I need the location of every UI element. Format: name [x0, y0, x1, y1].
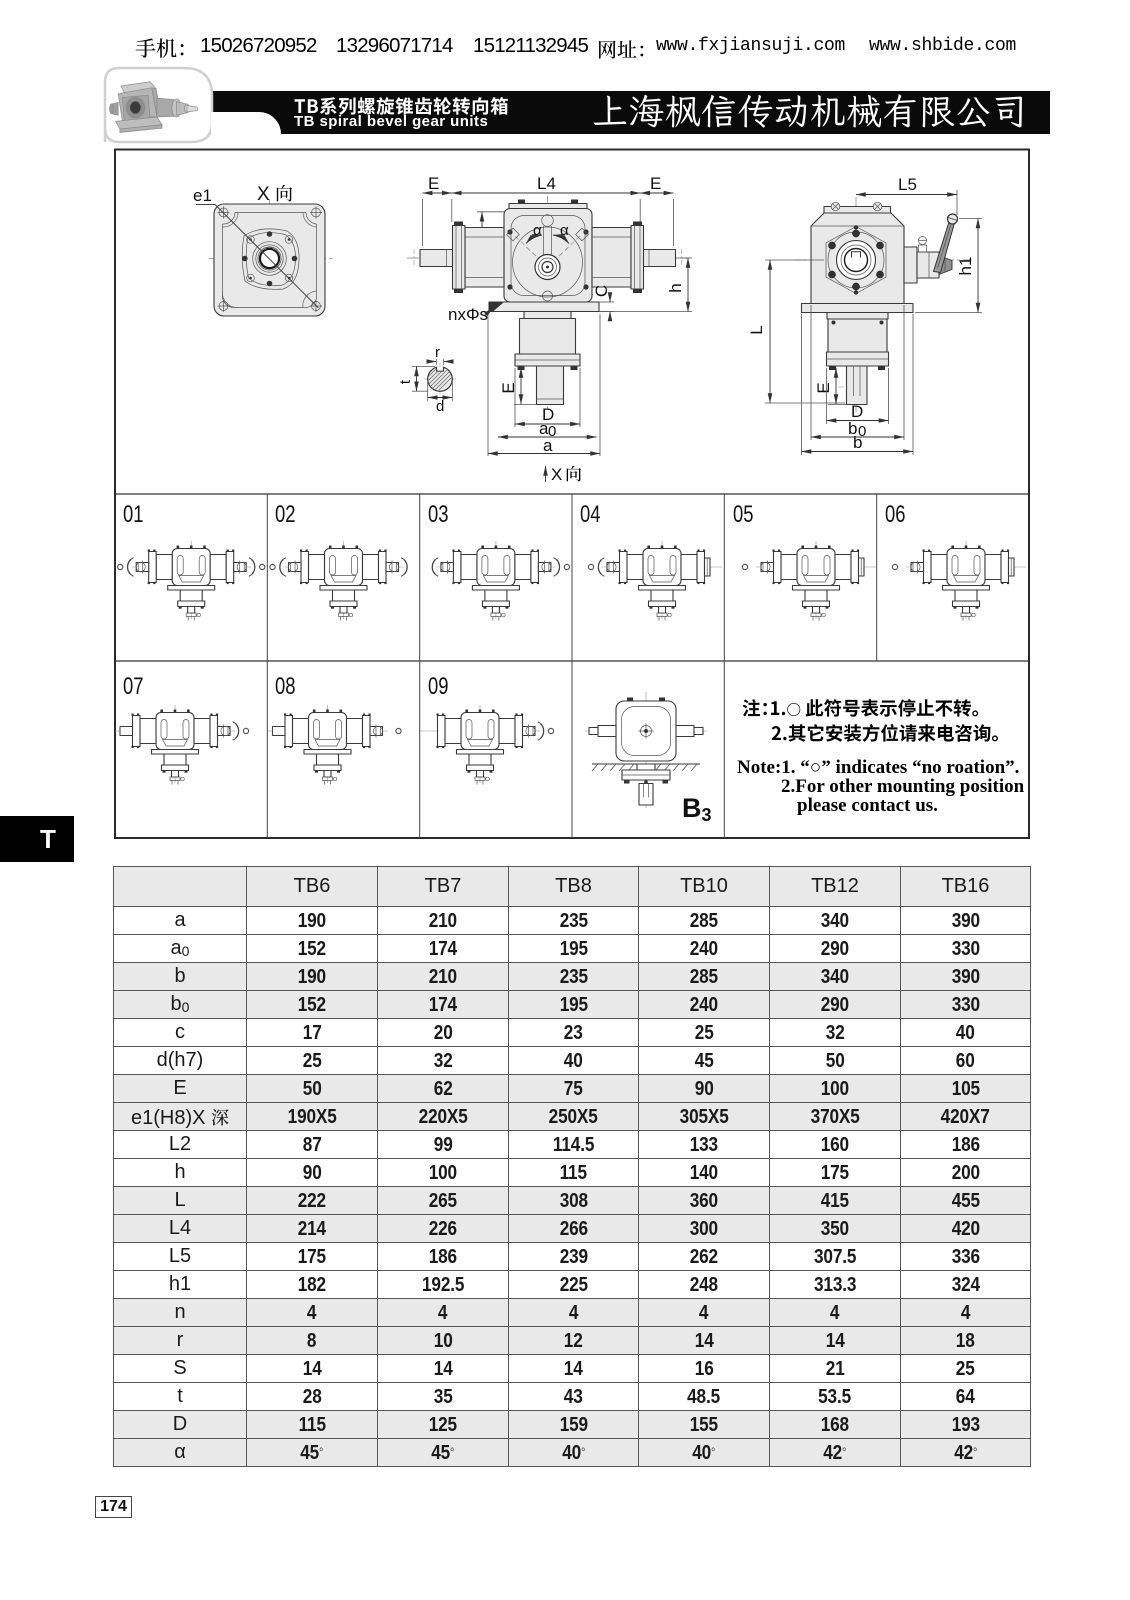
- svg-text:nxΦs: nxΦs: [448, 305, 488, 324]
- svg-text:h: h: [666, 283, 685, 292]
- svg-text:d: d: [436, 398, 444, 415]
- svg-text:e1: e1: [193, 186, 212, 205]
- svg-text:α: α: [560, 222, 569, 239]
- svg-text:b: b: [853, 433, 862, 452]
- svg-text:02: 02: [275, 501, 296, 528]
- svg-text:04: 04: [580, 501, 601, 528]
- svg-text:向: 向: [565, 460, 582, 485]
- svg-text:06: 06: [885, 501, 906, 528]
- svg-text:h1: h1: [956, 257, 975, 276]
- svg-text:向: 向: [275, 180, 293, 206]
- svg-text:L5: L5: [898, 175, 917, 194]
- svg-text:09: 09: [428, 673, 449, 700]
- svg-text:X: X: [551, 465, 562, 484]
- svg-text:05: 05: [733, 501, 754, 528]
- svg-text:01: 01: [123, 501, 144, 528]
- svg-text:E: E: [428, 174, 439, 193]
- svg-text:03: 03: [428, 501, 449, 528]
- svg-text:t: t: [397, 379, 414, 384]
- svg-text:L4: L4: [537, 174, 556, 193]
- svg-text:C: C: [592, 285, 611, 297]
- svg-text:07: 07: [123, 673, 144, 700]
- svg-text:r: r: [435, 344, 440, 361]
- svg-text:B3: B3: [682, 793, 712, 825]
- svg-text:α: α: [533, 222, 542, 239]
- svg-text:E: E: [814, 382, 833, 393]
- svg-text:E: E: [650, 174, 661, 193]
- svg-text:a: a: [543, 436, 553, 455]
- svg-text:X: X: [257, 184, 270, 205]
- svg-text:08: 08: [275, 673, 296, 700]
- svg-text:L: L: [747, 325, 766, 334]
